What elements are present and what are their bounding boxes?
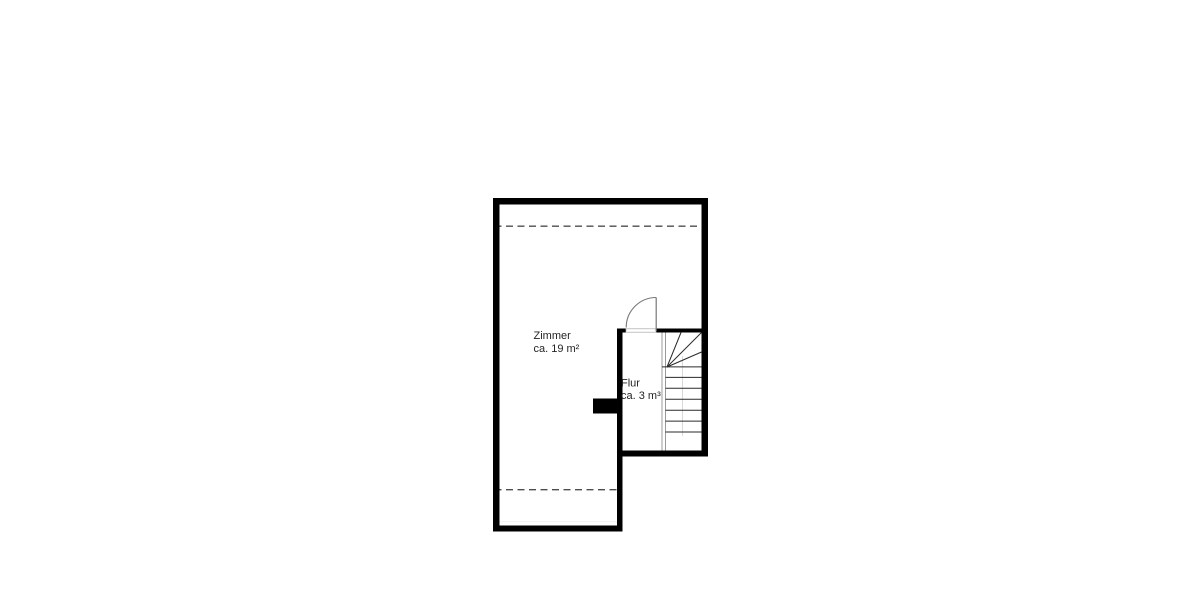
svg-text:ca. 3 m³: ca. 3 m³: [621, 390, 661, 402]
svg-text:Flur: Flur: [621, 378, 640, 390]
svg-text:ca. 19 m²: ca. 19 m²: [534, 343, 580, 355]
svg-text:Zimmer: Zimmer: [534, 330, 572, 342]
